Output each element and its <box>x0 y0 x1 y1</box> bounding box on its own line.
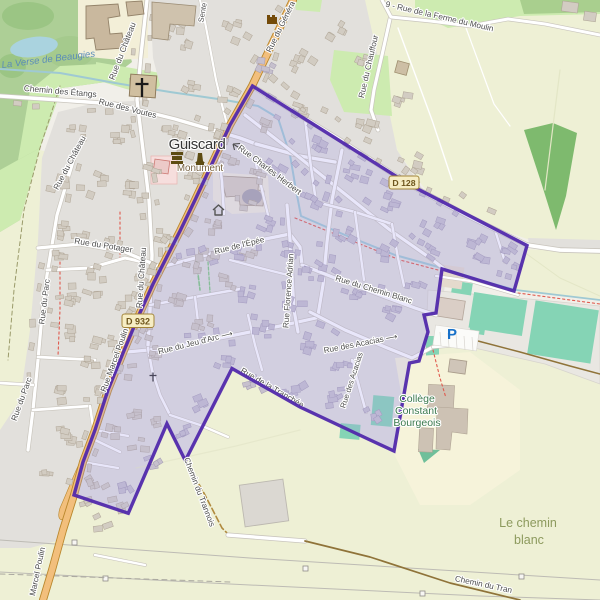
svg-text:Bourgeois: Bourgeois <box>393 417 440 429</box>
svg-text:Guiscard: Guiscard <box>169 136 226 153</box>
svg-text:Collège: Collège <box>399 393 435 405</box>
svg-text:D 128: D 128 <box>392 178 415 188</box>
svg-text:D 932: D 932 <box>126 317 150 327</box>
svg-text:Le chemin: Le chemin <box>499 516 557 530</box>
svg-text:P: P <box>447 326 457 343</box>
svg-text:Constant: Constant <box>395 405 437 417</box>
svg-text:blanc: blanc <box>514 533 544 547</box>
